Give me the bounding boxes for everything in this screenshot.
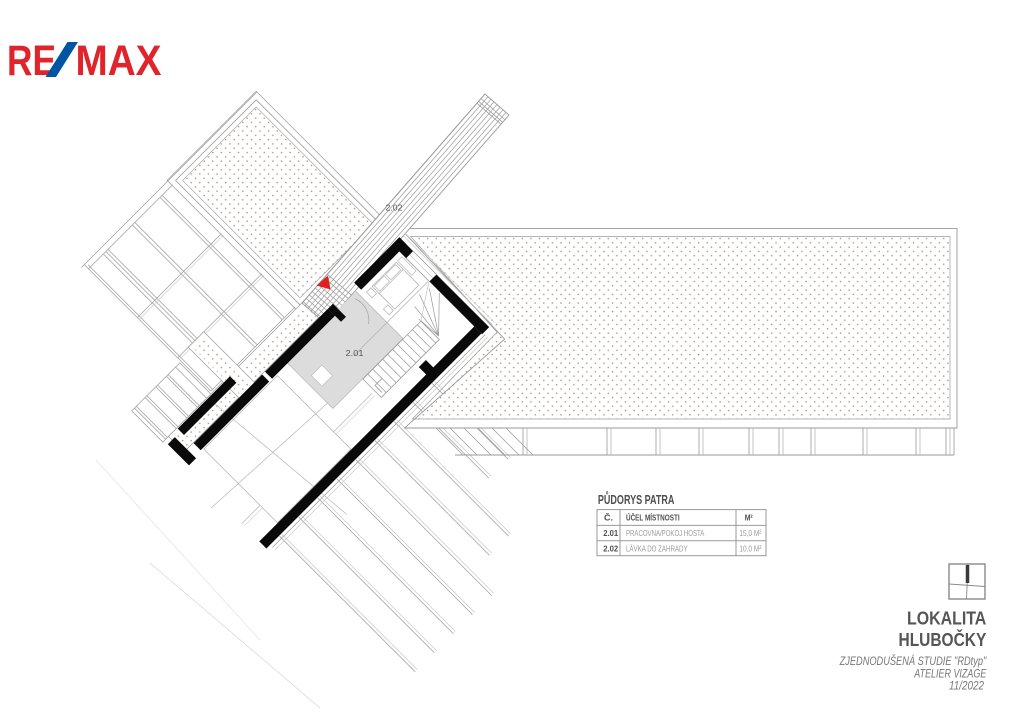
svg-text:11/2022: 11/2022 [949,681,985,693]
svg-text:ATELIER VIZAGE: ATELIER VIZAGE [914,669,987,681]
svg-text:15,0 M²: 15,0 M² [739,528,761,538]
svg-text:PŮDORYS PATRA: PŮDORYS PATRA [598,491,675,507]
svg-text:LOKALITA: LOKALITA [907,608,986,629]
svg-text:2.02: 2.02 [603,543,618,553]
svg-text:HLUBOČKY: HLUBOČKY [899,629,987,650]
svg-text:MAX: MAX [76,37,162,85]
svg-text:ZJEDNODUŠENÁ STUDIE "RDtyp": ZJEDNODUŠENÁ STUDIE "RDtyp" [839,655,987,668]
svg-text:M²: M² [745,513,753,523]
svg-text:PRACOVNA/POKOJ HOSTA: PRACOVNA/POKOJ HOSTA [626,528,705,538]
svg-text:2.02: 2.02 [386,204,404,213]
svg-text:LÁVKA DO ZAHRADY: LÁVKA DO ZAHRADY [626,543,688,553]
svg-text:ÚČEL MÍSTNOSTI: ÚČEL MÍSTNOSTI [626,512,680,523]
svg-text:RE: RE [7,37,56,85]
svg-text:2.01: 2.01 [346,348,364,358]
svg-text:10,0 M²: 10,0 M² [739,543,761,553]
svg-text:2.01: 2.01 [603,528,618,538]
svg-text:Č.: Č. [604,512,613,523]
